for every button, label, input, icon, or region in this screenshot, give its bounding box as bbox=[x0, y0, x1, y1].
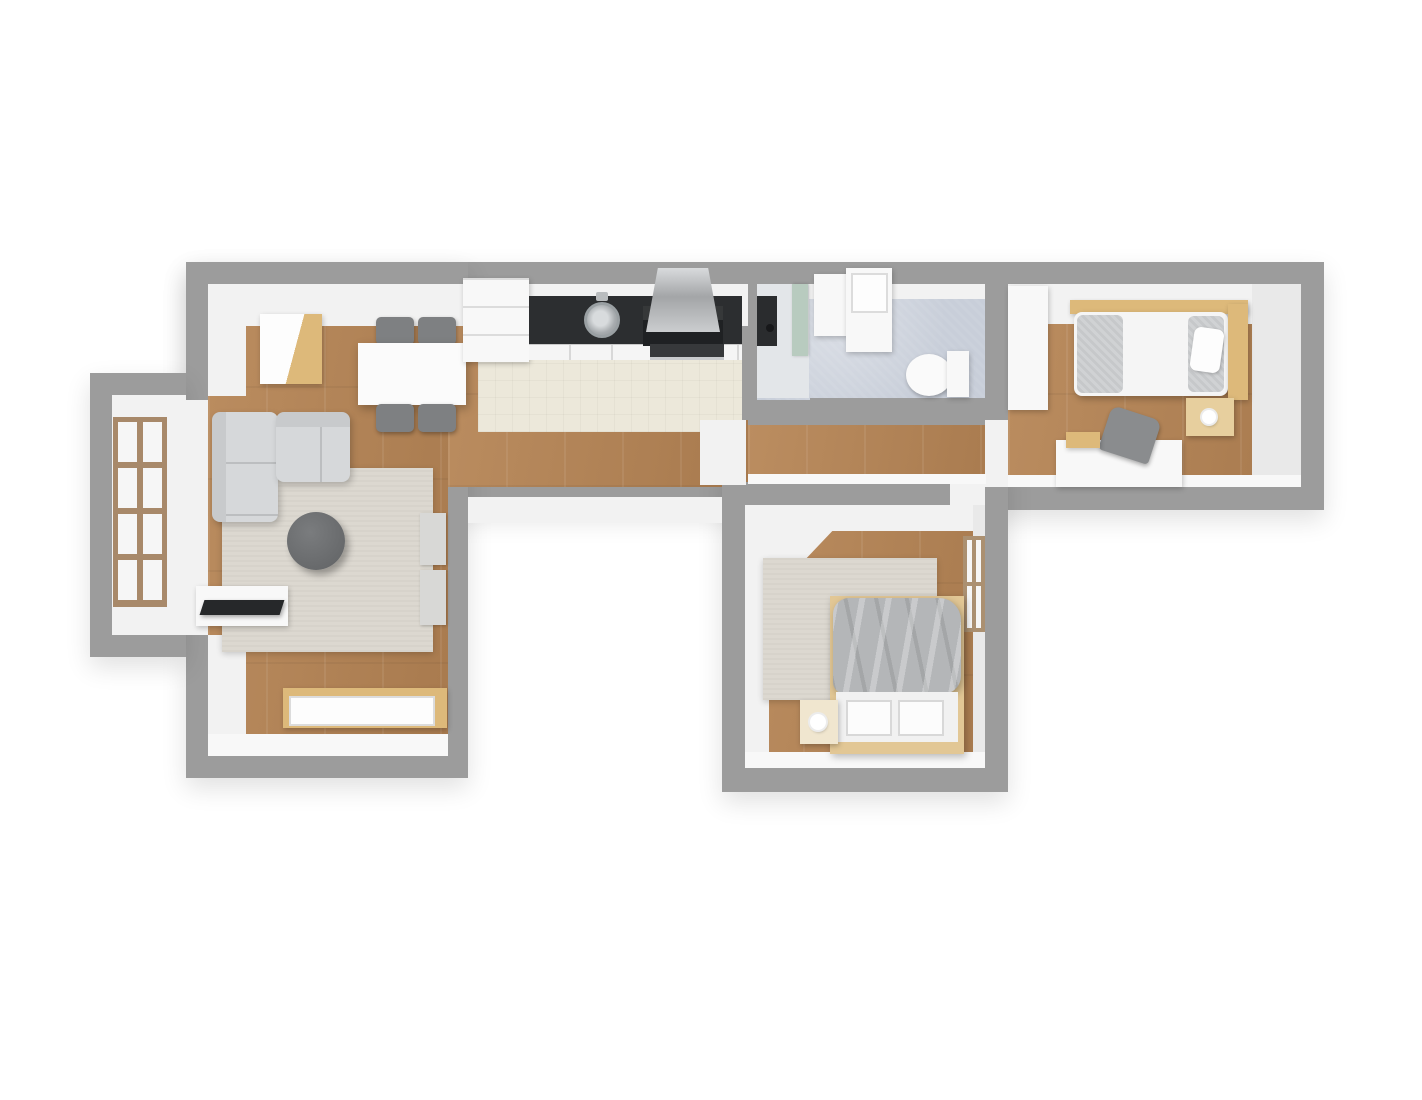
living-window bbox=[113, 417, 167, 607]
bed-bottom-blanket bbox=[833, 598, 961, 694]
coffee-table bbox=[287, 512, 345, 570]
wallface-bottom-living bbox=[208, 734, 448, 756]
dining-chair-bottom-left bbox=[376, 404, 414, 432]
shower-glass bbox=[792, 284, 808, 356]
wall-bathroom-bedroom bbox=[985, 262, 1008, 402]
dining-chair-top-right bbox=[418, 317, 456, 345]
dining-chair-top-left bbox=[376, 317, 414, 345]
shower-panel bbox=[757, 296, 777, 346]
wall-bedroom-bottom-top bbox=[722, 482, 956, 505]
shower-drain bbox=[766, 324, 774, 332]
floor-plan bbox=[0, 0, 1422, 1100]
washing-machine bbox=[814, 274, 848, 336]
toilet-tank bbox=[947, 351, 969, 397]
bed-bottom-panel-right bbox=[898, 700, 944, 736]
desk-box bbox=[1066, 432, 1100, 448]
kitchen-hood bbox=[646, 268, 720, 332]
nightstand-bottom-lamp bbox=[810, 714, 826, 730]
kitchen-faucet bbox=[596, 292, 608, 301]
wallface-void-top bbox=[468, 497, 722, 523]
door-bedroom-right bbox=[985, 420, 1008, 487]
bed-right-folded-blanket bbox=[1077, 315, 1123, 393]
radiator-lower bbox=[420, 570, 446, 625]
nightstand-right-lamp bbox=[1202, 410, 1216, 424]
radiator-upper bbox=[420, 513, 446, 565]
living-cabinet bbox=[260, 314, 322, 384]
wallface-bottom-bedroom-bottom bbox=[745, 752, 985, 768]
wallface-left-living-upper bbox=[208, 284, 246, 396]
bathroom-basin bbox=[851, 273, 888, 313]
kitchen-tall-unit bbox=[463, 278, 529, 362]
toilet-bowl bbox=[906, 354, 952, 396]
wall-bathroom-bottom bbox=[810, 398, 985, 420]
bed-bottom-panel-left bbox=[846, 700, 892, 736]
door-bedroom-bottom bbox=[950, 482, 985, 507]
dining-table bbox=[358, 343, 466, 405]
dining-chair-bottom-right bbox=[418, 404, 456, 432]
wallface-right-bedroom-right bbox=[1252, 284, 1301, 487]
bedroom-bottom-window bbox=[963, 536, 985, 632]
wardrobe bbox=[1008, 286, 1048, 410]
wallface-hallway-bottom bbox=[748, 474, 986, 484]
bed-right-pillow-white bbox=[1189, 326, 1225, 374]
sideboard-front bbox=[289, 696, 435, 726]
kitchen-sink bbox=[584, 302, 620, 338]
sofa-chaise bbox=[212, 412, 278, 522]
tv-screen bbox=[200, 600, 285, 615]
bed-bottom-base bbox=[833, 744, 961, 754]
kitchen-oven bbox=[650, 344, 724, 360]
door-entry bbox=[700, 420, 746, 485]
bed-right-headboard bbox=[1228, 304, 1248, 400]
sofa-main bbox=[276, 412, 350, 482]
